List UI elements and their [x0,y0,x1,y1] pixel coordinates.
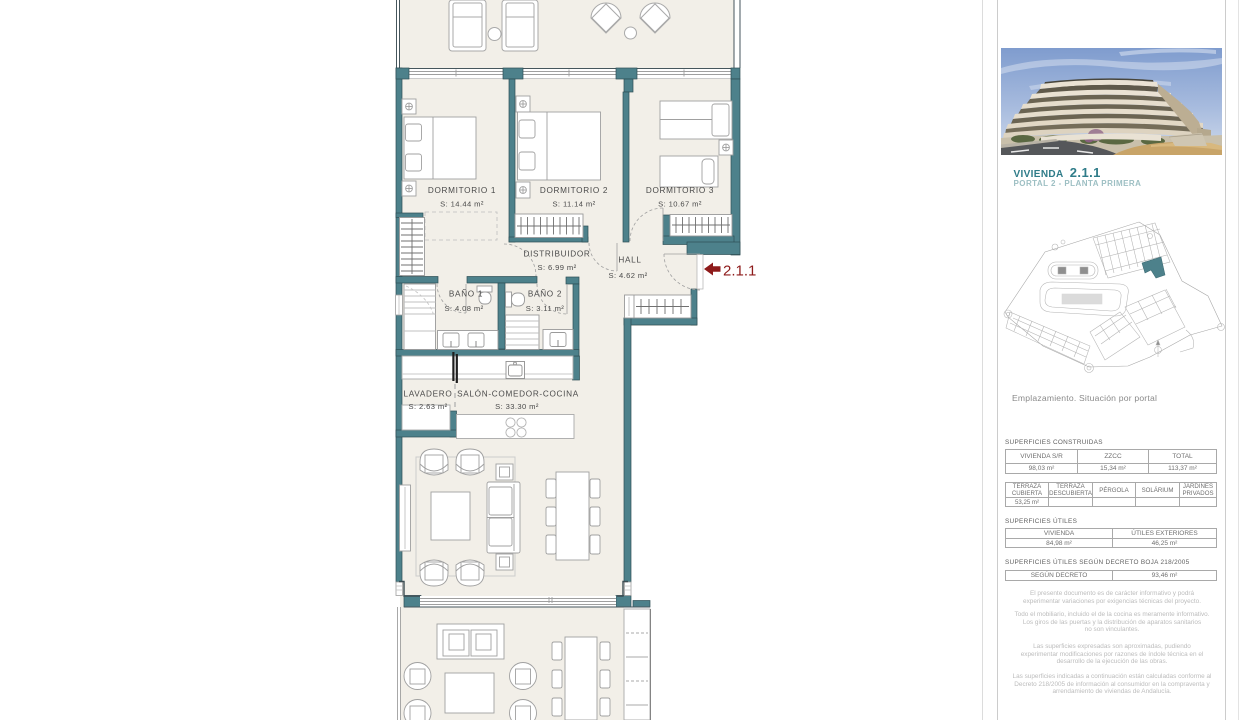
svg-text:S: 4.08 m²: S: 4.08 m² [444,304,483,313]
svg-text:DORMITORIO 2: DORMITORIO 2 [540,186,608,195]
svg-text:S: 11.14 m²: S: 11.14 m² [552,200,595,209]
svg-text:DORMITORIO 3: DORMITORIO 3 [646,186,714,195]
svg-text:S: 33.30 m²: S: 33.30 m² [495,402,539,411]
svg-text:SALÓN-COMEDOR-COCINA: SALÓN-COMEDOR-COCINA [457,389,579,399]
svg-text:S: 2.63 m²: S: 2.63 m² [408,402,447,411]
svg-text:S: 14.44 m²: S: 14.44 m² [440,200,484,209]
svg-text:S: 10.67 m²: S: 10.67 m² [658,200,702,209]
svg-text:2.1.1: 2.1.1 [723,263,756,280]
svg-text:BAÑO 2: BAÑO 2 [528,289,562,299]
svg-text:S: 3.11 m²: S: 3.11 m² [526,304,565,313]
svg-text:HALL: HALL [618,256,641,265]
svg-text:DISTRIBUIDOR: DISTRIBUIDOR [523,250,590,259]
svg-text:S: 4.62 m²: S: 4.62 m² [608,271,647,280]
svg-text:BAÑO 1: BAÑO 1 [449,289,483,299]
svg-text:S: 6.99 m²: S: 6.99 m² [537,263,576,272]
svg-text:LAVADERO: LAVADERO [404,390,453,399]
svg-text:DORMITORIO 1: DORMITORIO 1 [428,186,496,195]
